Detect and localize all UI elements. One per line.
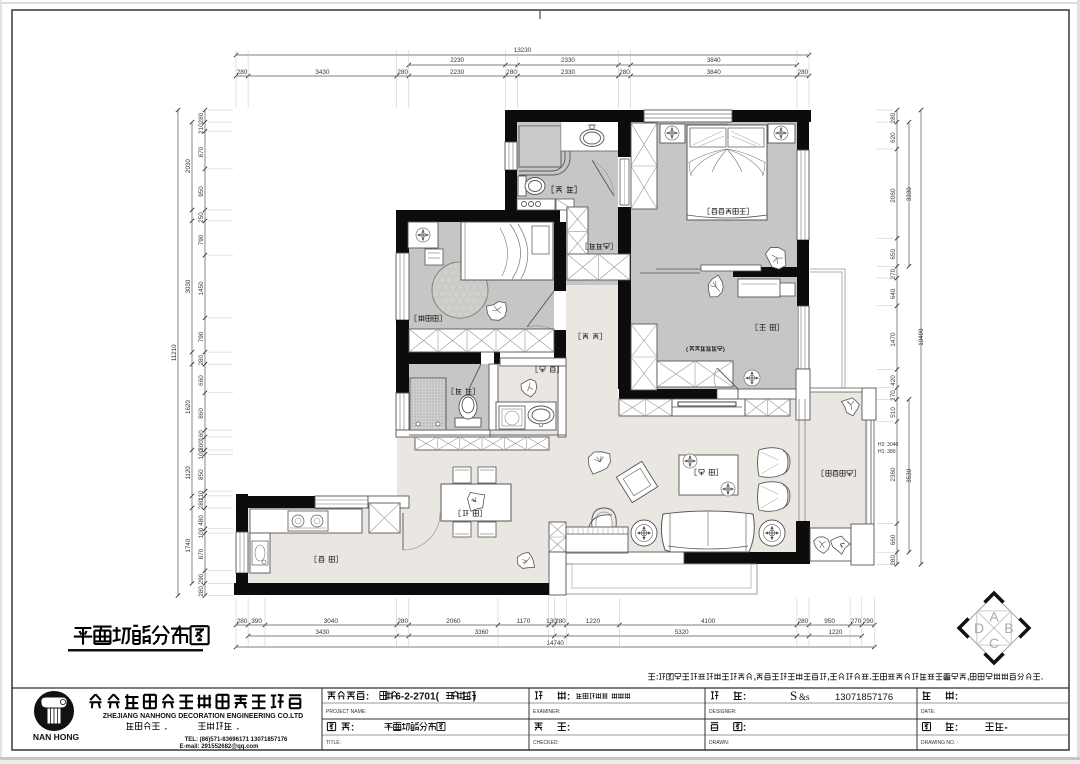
svg-text:,: ,: [827, 673, 829, 682]
svg-text:280: 280: [397, 618, 408, 625]
svg-text:TEL: (86)571-83696171 130718: TEL: (86)571-83696171 13071857176: [185, 737, 288, 743]
svg-text:510: 510: [890, 407, 897, 418]
svg-text::: :: [567, 722, 570, 733]
svg-text:C: C: [989, 635, 999, 651]
svg-text:650: 650: [890, 249, 897, 260]
svg-text:280: 280: [798, 69, 809, 76]
svg-text:3840: 3840: [707, 57, 721, 64]
svg-text::: :: [366, 691, 369, 702]
svg-text:280: 280: [198, 112, 205, 123]
svg-text:3430: 3430: [315, 69, 330, 76]
svg-text:100: 100: [198, 448, 205, 459]
svg-text:280: 280: [798, 618, 809, 625]
svg-text::: :: [955, 722, 958, 733]
svg-text:ZHEJIANG NANHONG DECORATION: ZHEJIANG NANHONG DECORATION ENGINEERING …: [103, 713, 303, 720]
svg-text::: :: [955, 691, 958, 702]
svg-text:): ): [473, 691, 476, 702]
svg-text:3330: 3330: [906, 187, 913, 201]
svg-text:.: .: [1041, 673, 1043, 682]
svg-text:280: 280: [890, 555, 897, 566]
svg-text:290: 290: [198, 573, 205, 584]
svg-text:280: 280: [198, 498, 205, 509]
svg-text:DESIGNER:: DESIGNER:: [709, 709, 737, 715]
svg-text:TITLE:: TITLE:: [326, 740, 341, 746]
svg-text:2360: 2360: [890, 467, 897, 482]
svg-text:850: 850: [198, 469, 205, 480]
svg-text:2030: 2030: [185, 159, 192, 173]
svg-text:11210: 11210: [171, 344, 178, 361]
svg-text:PROJECT NAME:: PROJECT NAME:: [326, 709, 366, 715]
svg-text:280: 280: [397, 69, 408, 76]
svg-text:2230: 2230: [450, 57, 464, 64]
svg-text:13071857176: 13071857176: [835, 692, 893, 703]
svg-text:660: 660: [198, 375, 205, 386]
svg-text:280: 280: [619, 69, 630, 76]
svg-text:13230: 13230: [514, 47, 532, 54]
svg-text:280: 280: [555, 618, 566, 625]
svg-text:E-mail: 291552682@qq.com: E-mail: 291552682@qq.com: [180, 744, 259, 750]
svg-text:1620: 1620: [185, 400, 192, 414]
svg-text:2060: 2060: [890, 188, 897, 203]
svg-text:100: 100: [198, 527, 205, 538]
svg-text:2060: 2060: [446, 618, 461, 625]
svg-text:950: 950: [824, 618, 835, 625]
svg-text:2230: 2230: [450, 69, 465, 76]
svg-text:250: 250: [198, 212, 205, 223]
svg-text:1120: 1120: [185, 466, 192, 480]
svg-text:270: 270: [851, 618, 862, 625]
svg-text:290: 290: [863, 618, 874, 625]
svg-text:620: 620: [890, 132, 897, 143]
svg-text:14740: 14740: [547, 640, 565, 647]
svg-text:D: D: [974, 620, 984, 636]
svg-text:DATE:: DATE:: [921, 709, 935, 715]
svg-text:DRAWN:: DRAWN:: [709, 740, 729, 746]
svg-text:1450: 1450: [198, 281, 205, 296]
svg-text:950: 950: [198, 186, 205, 197]
svg-text:.: .: [870, 673, 872, 682]
svg-text:DRAWING NO. :: DRAWING NO. :: [921, 740, 958, 746]
svg-text:4100: 4100: [701, 618, 716, 625]
svg-text:280: 280: [198, 586, 205, 597]
svg-text:420: 420: [890, 375, 897, 386]
svg-text:3530: 3530: [906, 468, 913, 482]
svg-text:H1: 380: H1: 380: [878, 449, 896, 455]
svg-text:160: 160: [198, 430, 205, 441]
svg-text:3840: 3840: [707, 69, 722, 76]
svg-text::: :: [743, 691, 746, 702]
svg-text:280: 280: [890, 112, 897, 123]
svg-text:390: 390: [251, 618, 262, 625]
svg-text:6-2-2701(: 6-2-2701(: [395, 691, 439, 702]
svg-text:1740: 1740: [185, 538, 192, 552]
svg-text::: :: [656, 673, 659, 682]
svg-text::: :: [351, 722, 354, 733]
svg-text:1470: 1470: [890, 332, 897, 347]
svg-text:H2: 3040: H2: 3040: [878, 442, 899, 448]
svg-text::: :: [567, 691, 570, 702]
svg-text:3030: 3030: [185, 279, 192, 293]
svg-text:280: 280: [506, 69, 517, 76]
svg-text::: :: [743, 722, 746, 733]
svg-text:&s: &s: [799, 692, 810, 702]
svg-text:2330: 2330: [561, 69, 576, 76]
svg-text:1220: 1220: [829, 629, 843, 636]
svg-text:A: A: [989, 609, 999, 625]
svg-text:EXAMINER:: EXAMINER:: [533, 709, 561, 715]
svg-text:CHECKED:: CHECKED:: [533, 740, 559, 746]
svg-text:): ): [723, 347, 725, 353]
svg-text:280: 280: [198, 354, 205, 365]
svg-text:.: .: [237, 721, 240, 731]
svg-text:5320: 5320: [675, 629, 689, 636]
svg-text:3040: 3040: [324, 618, 339, 625]
svg-text:640: 640: [890, 288, 897, 299]
svg-text:860: 860: [198, 408, 205, 419]
svg-text:3430: 3430: [316, 629, 330, 636]
svg-text:1170: 1170: [517, 618, 531, 625]
svg-text:790: 790: [198, 331, 205, 342]
svg-text:,: ,: [967, 673, 969, 682]
svg-text:NAN HONG: NAN HONG: [33, 732, 80, 742]
svg-text:870: 870: [198, 146, 205, 157]
svg-text:B: B: [1004, 620, 1013, 636]
svg-text:210: 210: [198, 123, 205, 134]
svg-text:280: 280: [237, 618, 248, 625]
svg-text:280: 280: [237, 69, 248, 76]
svg-text:.: .: [165, 721, 168, 731]
svg-text:480: 480: [198, 515, 205, 526]
svg-text:870: 870: [198, 548, 205, 559]
svg-text:660: 660: [890, 534, 897, 545]
svg-text:10490: 10490: [918, 328, 925, 346]
svg-text:2330: 2330: [561, 57, 575, 64]
svg-text:3360: 3360: [475, 629, 489, 636]
svg-text:1220: 1220: [586, 618, 601, 625]
svg-text:(: (: [686, 347, 688, 353]
svg-text:,: ,: [754, 673, 756, 682]
svg-text:790: 790: [198, 234, 205, 245]
svg-text:S: S: [790, 688, 797, 703]
svg-text:-: -: [1004, 722, 1007, 733]
